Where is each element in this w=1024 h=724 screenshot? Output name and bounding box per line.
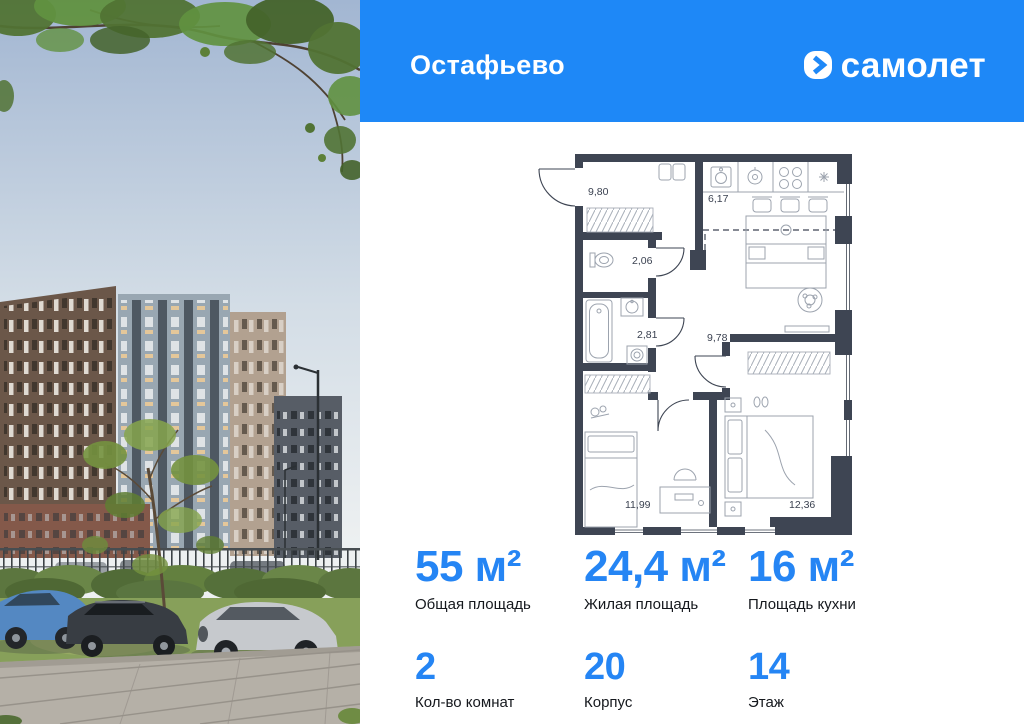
entrance-door-arc xyxy=(539,169,575,206)
stat-label: Площадь кухни xyxy=(748,596,913,614)
washing-machine-icon xyxy=(659,164,685,180)
wc-door-arc xyxy=(656,248,684,276)
stat-value: 24,4 м² xyxy=(584,543,749,591)
plant-icon xyxy=(591,406,609,418)
room-area-label: 9,78 xyxy=(707,332,728,344)
bed-icon xyxy=(585,432,637,527)
kettle-icon xyxy=(748,167,762,184)
samolet-logo-text: самолет xyxy=(841,48,986,83)
sink-icon xyxy=(711,167,731,187)
stat-total-area: 55 м² Общая площадь xyxy=(415,543,580,614)
stat-label: Корпус xyxy=(584,694,749,712)
kitchen-counter xyxy=(703,162,844,192)
page-title: Остафьево xyxy=(410,50,565,81)
samolet-logo-icon xyxy=(804,51,832,79)
stat-value: 16 м² xyxy=(748,543,913,591)
bedroom-right-door-arc xyxy=(695,356,726,387)
samolet-logo: самолет xyxy=(804,48,986,83)
desk-icon xyxy=(660,469,710,513)
photo-illustration xyxy=(0,0,360,724)
stat-building-number: 20 Корпус xyxy=(584,645,749,712)
stat-label: Жилая площадь xyxy=(584,596,749,614)
room-area-label: 2,81 xyxy=(637,329,658,341)
fridge-icon xyxy=(819,172,829,182)
stat-kitchen-area: 16 м² Площадь кухни xyxy=(748,543,913,614)
room-area-label: 9,80 xyxy=(588,186,609,198)
stat-value: 2 xyxy=(415,645,580,689)
sofa-icon xyxy=(746,244,826,288)
stat-rooms-count: 2 Кол-во комнат xyxy=(415,645,580,712)
plant-table-icon xyxy=(798,288,822,312)
stat-label: Кол-во комнат xyxy=(415,694,580,712)
bedroom-left-door-arc xyxy=(658,400,689,431)
stat-label: Общая площадь xyxy=(415,596,580,614)
bathroom-sink-icon xyxy=(621,298,643,316)
apartment-flyer-card: Остафьево самолет xyxy=(0,0,1024,724)
floor-plan: 9,80 6,17 2,06 2,81 9,78 11,99 12,36 xyxy=(535,150,865,545)
stat-label: Этаж xyxy=(748,694,913,712)
room-area-label: 6,17 xyxy=(708,193,729,205)
bathtub-icon xyxy=(586,300,612,362)
bathroom-door-arc xyxy=(656,318,684,346)
stat-living-area: 24,4 м² Жилая площадь xyxy=(584,543,749,614)
stat-floor-number: 14 Этаж xyxy=(748,645,913,712)
room-area-label: 11,99 xyxy=(625,499,651,511)
header-band: Остафьево самолет xyxy=(360,0,1024,122)
toilet-icon xyxy=(590,253,613,267)
room-area-label: 12,36 xyxy=(789,499,815,511)
bathroom-washer-icon xyxy=(627,346,647,364)
room-area-label: 2,06 xyxy=(632,255,653,267)
tv-icon xyxy=(785,326,829,332)
stat-value: 14 xyxy=(748,645,913,689)
stat-value: 55 м² xyxy=(415,543,580,591)
stat-value: 20 xyxy=(584,645,749,689)
dining-table-icon xyxy=(746,197,828,244)
stove-icon xyxy=(780,168,802,189)
